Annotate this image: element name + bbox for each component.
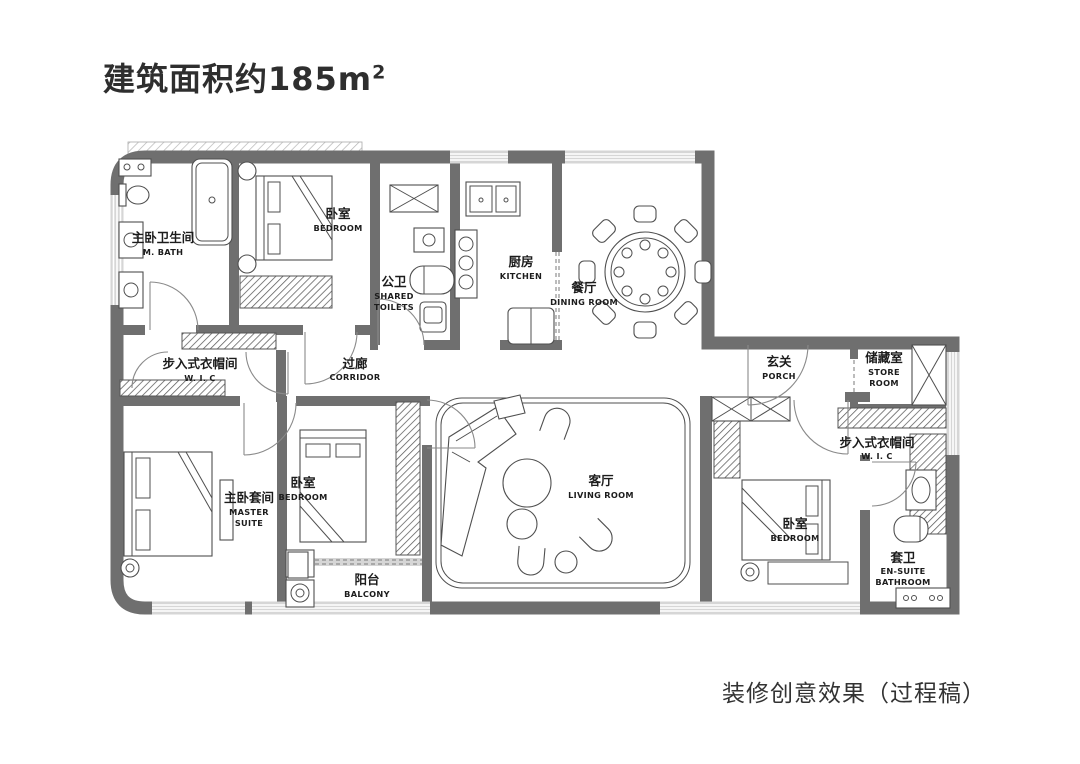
label-bedroom-right-cn: 卧室	[782, 516, 808, 531]
coffee-table	[503, 459, 551, 507]
label-master-suite-en1: MASTER	[229, 507, 269, 517]
kitchen-sink	[466, 182, 520, 216]
stove	[455, 230, 477, 298]
nightstand	[741, 563, 759, 581]
nightstand	[288, 552, 308, 578]
label-store-en1: STORE	[868, 367, 900, 377]
wardrobe-wic-right-top	[838, 408, 946, 428]
window-right	[947, 352, 960, 455]
label-ensuite-cn: 套卫	[889, 550, 916, 565]
window-balcony	[252, 602, 430, 615]
nightstand	[121, 559, 139, 577]
label-bedroom-right-en: BEDROOM	[770, 533, 819, 543]
floor-plan-drawing: 主卧卫生间 M. BATH 卧室 BEDROOM 公卫 SHARED TOILE…	[0, 0, 1080, 764]
label-bedroom-top-cn: 卧室	[325, 206, 351, 221]
window-master-suite	[152, 602, 245, 615]
label-store-en2: ROOM	[869, 378, 899, 388]
label-bedroom-top-en: BEDROOM	[313, 223, 362, 233]
tall-cabinet-porch	[912, 345, 946, 405]
label-wic-right-cn: 步入式衣帽间	[839, 435, 914, 450]
label-balcony-cn: 阳台	[354, 572, 379, 587]
bed	[256, 176, 332, 260]
wardrobe-wic-left-top	[182, 333, 276, 349]
tub	[410, 266, 454, 294]
wardrobe-bedroom-top	[240, 276, 332, 308]
cabinet-shared-toilet	[390, 185, 438, 212]
label-shared-toilet-en1: SHARED	[374, 291, 414, 301]
sink	[906, 470, 936, 510]
label-store-cn: 储藏室	[864, 350, 903, 365]
label-kitchen-en: KITCHEN	[500, 271, 542, 281]
label-corridor-en: CORRIDOR	[329, 372, 380, 382]
label-living-cn: 客厅	[587, 473, 614, 488]
floor-plan-page: 建筑面积约185m2	[0, 0, 1080, 764]
label-master-suite-en2: SUITE	[235, 518, 263, 528]
label-bedroom-mid-en: BEDROOM	[278, 492, 327, 502]
bathtub	[192, 159, 232, 245]
title-superscript: 2	[372, 61, 386, 83]
toilet	[127, 186, 149, 204]
label-balcony-en: BALCONY	[344, 589, 390, 599]
title-text: 建筑面积约185m	[103, 60, 372, 98]
label-kitchen-cn: 厨房	[508, 254, 533, 269]
bed	[124, 452, 212, 556]
label-wic-left-cn: 步入式衣帽间	[162, 356, 237, 371]
label-corridor-cn: 过廊	[342, 356, 368, 371]
nightstand	[238, 255, 256, 273]
drawing-caption: 装修创意效果（过程稿）	[722, 674, 986, 708]
page-title: 建筑面积约185m2	[103, 54, 386, 100]
label-master-bath-en: M. BATH	[143, 247, 184, 257]
label-wic-left-en: W. I. C	[184, 373, 215, 383]
shoe-cabinet-porch	[712, 397, 790, 421]
label-porch-en: PORCH	[762, 371, 796, 381]
coffee-table-small	[507, 509, 537, 539]
toilet-tank	[119, 184, 126, 206]
vanity-sink	[119, 272, 143, 308]
label-wic-right-en: W. I. C	[861, 451, 892, 461]
window-dining	[565, 151, 695, 164]
label-ensuite-en2: BATHROOM	[875, 577, 930, 587]
sink	[414, 228, 444, 252]
label-porch-cn: 玄关	[766, 354, 792, 369]
vanity-double-sink	[896, 588, 950, 608]
window-bedroom-right	[660, 602, 860, 615]
window-kitchen	[450, 151, 508, 164]
label-shared-toilet-en2: TOILETS	[374, 302, 414, 312]
label-dining-en: DINING ROOM	[550, 297, 618, 307]
side-table	[555, 551, 577, 573]
label-bedroom-mid-cn: 卧室	[290, 475, 316, 490]
label-shared-toilet-cn: 公卫	[381, 274, 407, 289]
label-dining-cn: 餐厅	[570, 280, 597, 295]
nightstand	[238, 162, 256, 180]
wardrobe-bedroom-mid	[396, 402, 420, 555]
label-master-suite-cn: 主卧套间	[224, 490, 274, 505]
label-master-bath-cn: 主卧卫生间	[132, 230, 195, 245]
label-ensuite-en1: EN-SUITE	[880, 566, 925, 576]
toilet	[894, 516, 928, 542]
label-living-en: LIVING ROOM	[568, 490, 634, 500]
